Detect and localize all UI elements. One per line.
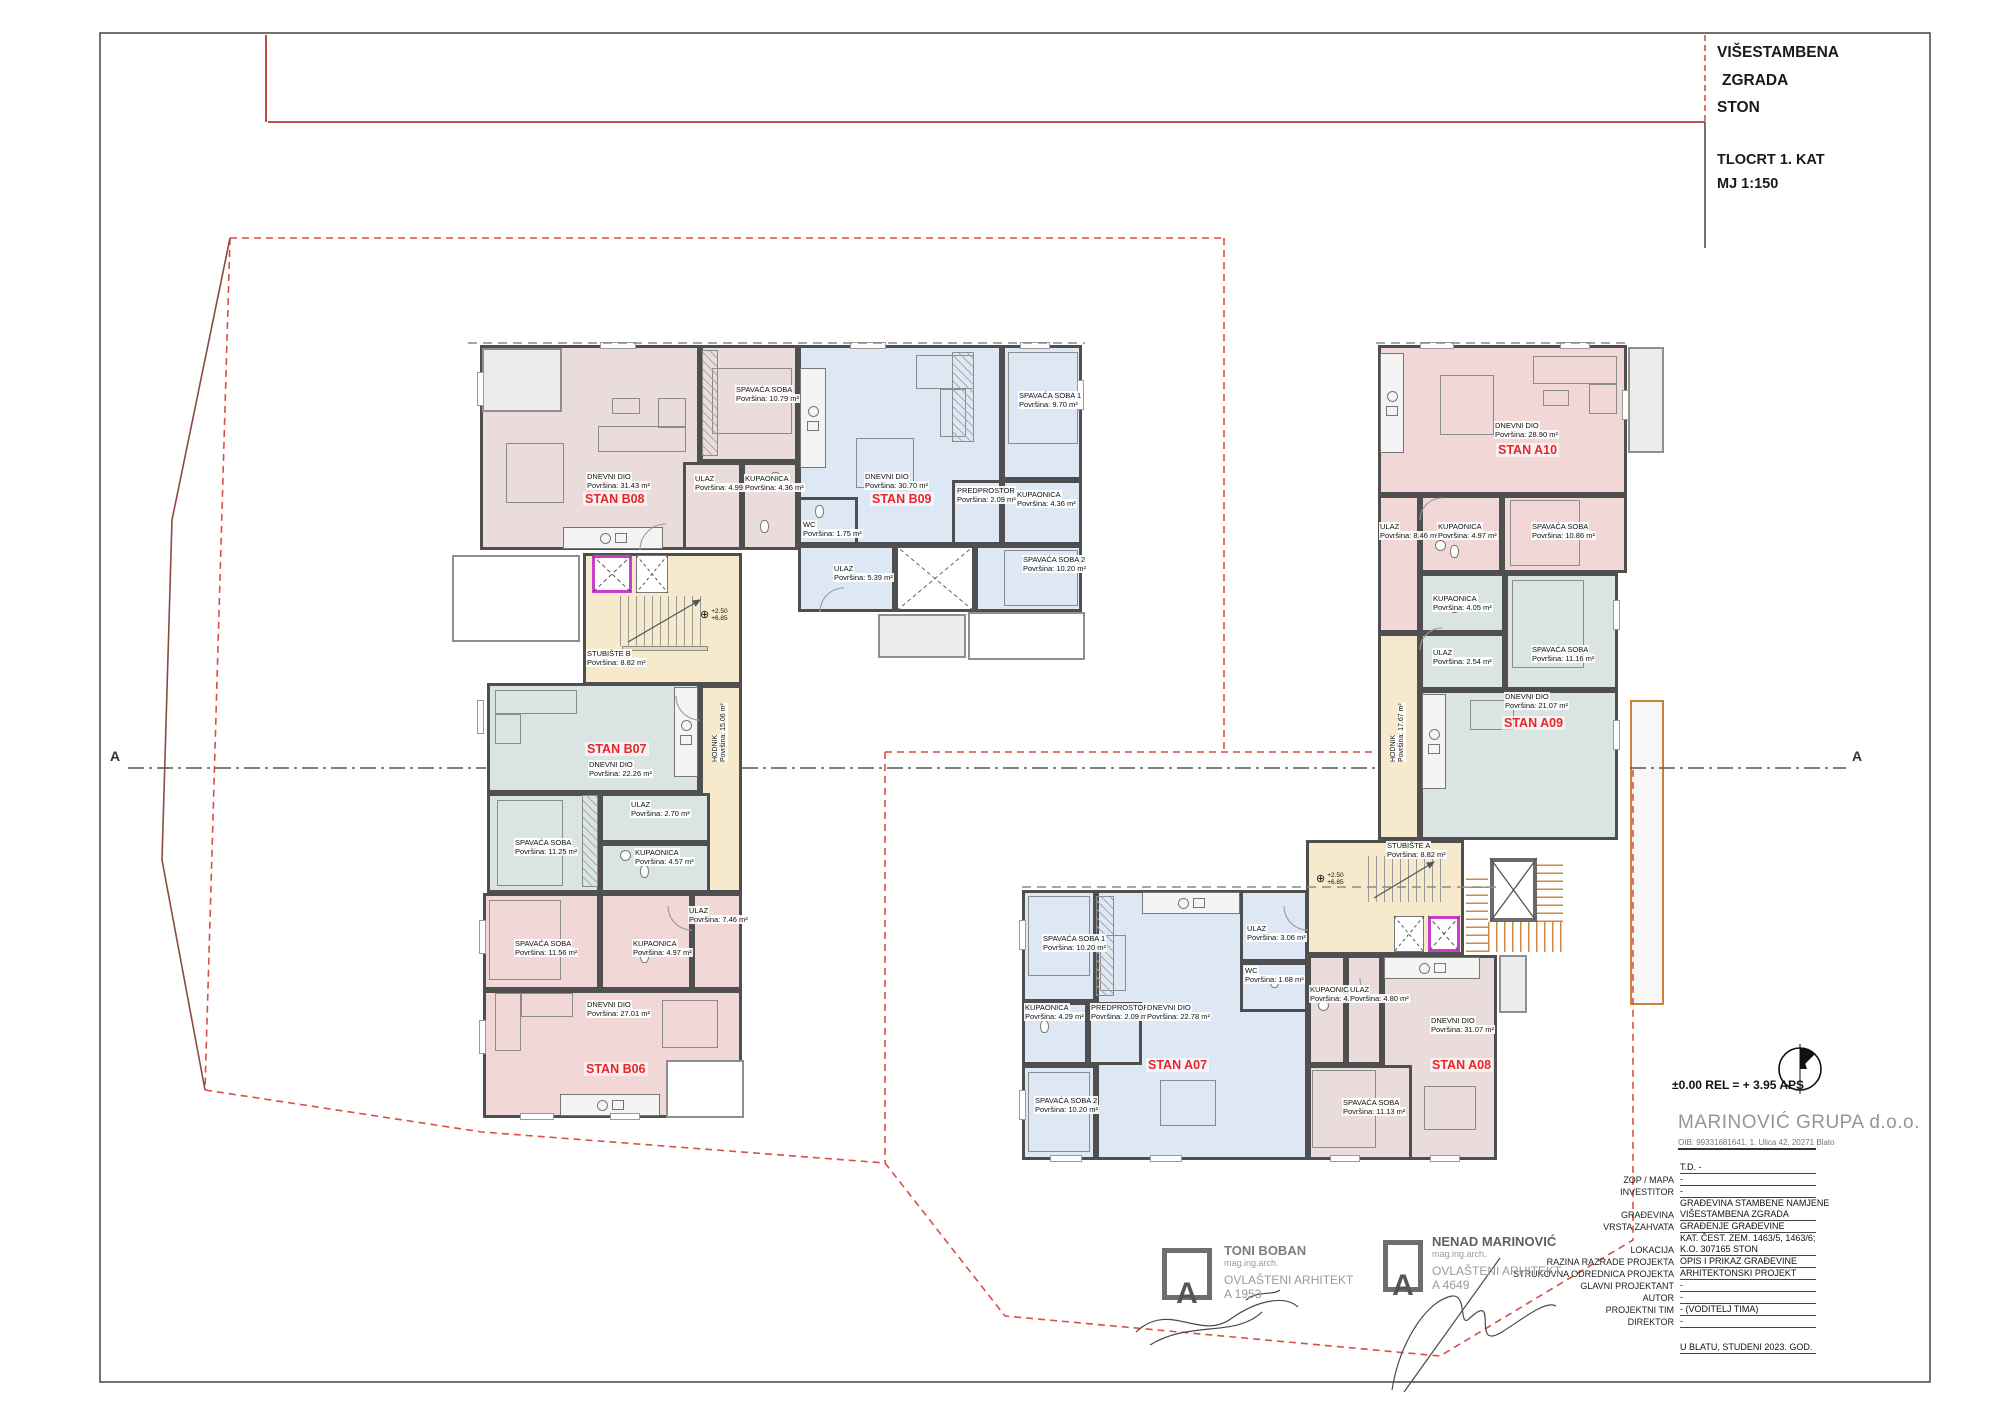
sink-icon (681, 720, 692, 731)
project-title-line1: VIŠESTAMBENA (1717, 44, 1839, 62)
architect-degree: mag.ing.arch. (1224, 1258, 1353, 1268)
window (1613, 720, 1620, 750)
room-label: SPAVAĆA SOBAPovršina: 11.16 m² (1531, 645, 1595, 663)
room-label: KUPAONICAPovršina: 4.57 m² (634, 848, 695, 866)
window (1019, 1090, 1026, 1120)
dining-table (506, 443, 564, 503)
terrace (666, 1060, 744, 1118)
apartment-label-b06: STAN B06 (584, 1062, 648, 1076)
room-a10-ulaz (1378, 495, 1420, 633)
apartment-label-a09: STAN A09 (1502, 716, 1565, 730)
terrace (1628, 347, 1664, 453)
terrace (968, 612, 1085, 660)
room-a09-living (1420, 690, 1618, 840)
room-label: KUPAONICAPovršina: 4.36 m² (744, 474, 805, 492)
window (479, 920, 486, 954)
terrace (482, 348, 562, 412)
architect-number: A 1953 (1224, 1287, 1353, 1301)
kitchen-counter (1384, 957, 1480, 979)
room-label: KUPAONICAPovršina: 4.97 m² (632, 939, 693, 957)
sofa (658, 398, 686, 428)
window (477, 372, 484, 406)
stove-icon (1193, 898, 1205, 908)
room-label: PREDPROSTORPovršina: 2.09 m² (1090, 1003, 1151, 1021)
window (610, 1113, 640, 1120)
kitchen-counter (1380, 353, 1404, 453)
skylight-box (1490, 858, 1537, 922)
window (1020, 342, 1050, 349)
level-marker: ⊕ +2.50+6.85 (700, 608, 728, 622)
coffee-table (612, 398, 640, 414)
apartment-label-b09: STAN B09 (870, 492, 934, 506)
elevator-b (592, 555, 632, 593)
apartment-label-a07: STAN A07 (1146, 1058, 1209, 1072)
drawing-scale: MJ 1:150 (1717, 176, 1778, 192)
info-row: GRAĐEVINAGRAĐEVINA STAMBENE NAMJENEVIŠES… (1346, 1198, 1816, 1221)
apartment-label-b08: STAN B08 (583, 492, 647, 506)
kitchen-counter (1422, 694, 1446, 789)
toilet-icon (815, 505, 824, 518)
room-label: SPAVAĆA SOBA 1Površina: 9.70 m² (1018, 391, 1082, 409)
apartment-label-a08: STAN A08 (1430, 1058, 1493, 1072)
window (1430, 1155, 1460, 1162)
room-label: DNEVNI DIOPovršina: 22.26 m² (588, 760, 653, 778)
dining-table (1160, 1080, 1216, 1126)
sofa (521, 993, 573, 1017)
window (850, 342, 886, 349)
kitchen-counter (1142, 892, 1240, 914)
coffee-table (1543, 390, 1569, 406)
info-row: DIREKTOR- (1346, 1316, 1816, 1328)
stove-icon (680, 735, 692, 745)
room-label: DNEVNI DIOPovršina: 31.07 m² (1430, 1016, 1495, 1034)
external-stair-run (1488, 922, 1563, 952)
room-label: ULAZPovršina: 7.46 m² (688, 906, 749, 924)
company-name: MARINOVIĆ GRUPA d.o.o. (1678, 1112, 1920, 1134)
signature-block-toni: TONI BOBAN mag.ing.arch. OVLAŠTENI ARHIT… (1224, 1243, 1353, 1301)
terrace (1499, 955, 1527, 1013)
window (1150, 1155, 1182, 1162)
room-label: ULAZPovršina: 2.54 m² (1432, 648, 1493, 666)
info-row: T.D. - (1346, 1162, 1816, 1174)
architect-title: OVLAŠTENI ARHITEKT (1432, 1264, 1561, 1278)
window (1019, 920, 1026, 950)
stair-treads-b (620, 596, 708, 646)
stove-icon (1434, 963, 1446, 973)
info-row: INVESTITOR- (1346, 1186, 1816, 1198)
room-label: SPAVAĆA SOBAPovršina: 10.86 m² (1531, 522, 1596, 540)
window (1560, 342, 1590, 349)
level-marker-icon: ⊕ (1316, 876, 1325, 883)
date-note: U BLATU, STUDENI 2023. GOD. (1680, 1342, 1816, 1354)
sofa (495, 993, 521, 1051)
room-label: ULAZPovršina: 3.06 m² (1246, 924, 1307, 942)
architect-name: TONI BOBAN (1224, 1243, 1353, 1258)
stove-icon (807, 421, 819, 431)
room-a08-kupaonica (1308, 955, 1346, 1065)
architect-number: A 4649 (1432, 1278, 1561, 1292)
room-label: KUPAONICAPovršina: 4.36 m² (1016, 490, 1077, 508)
room-label: DNEVNI DIOPovršina: 27.01 m² (586, 1000, 651, 1018)
project-title-line2: ZGRADA (1722, 72, 1788, 90)
window (520, 1113, 554, 1120)
info-row: VRSTA ZAHVATAGRAĐENJE GRAĐEVINE (1346, 1221, 1816, 1233)
room-label: DNEVNI DIOPovršina: 31.43 m² (586, 472, 651, 490)
architect-title: OVLAŠTENI ARHITEKT (1224, 1273, 1353, 1287)
sink-icon (620, 850, 631, 861)
section-marker-left: A (110, 748, 120, 764)
elevation-note: ±0.00 REL = + 3.95 APS (1672, 1078, 1804, 1092)
dining-table (1424, 1086, 1476, 1130)
toilet-icon (1040, 1020, 1049, 1033)
info-row: PROJEKTNI TIM- (VODITELJ TIMA) (1346, 1304, 1816, 1316)
elevator-a (1428, 916, 1460, 952)
corridor-b-label: HODNIKPovršina: 15.06 m² (712, 703, 728, 762)
room-label: ULAZPovršina: 5.39 m² (833, 564, 894, 582)
sofa (1533, 356, 1617, 384)
architect-degree: mag.ing.arch. (1432, 1249, 1561, 1259)
terrace (878, 614, 966, 658)
terrace (1630, 700, 1664, 1005)
external-stair-run (1537, 858, 1563, 922)
wardrobe (582, 795, 598, 887)
room-label: DNEVNI DIOPovršina: 28.90 m² (1494, 421, 1559, 439)
toilet-icon (1450, 545, 1459, 558)
room-label: SPAVAĆA SOBAPovršina: 11.56 m² (514, 939, 578, 957)
architect-name: NENAD MARINOVIĆ (1432, 1234, 1561, 1249)
window (1420, 342, 1454, 349)
wardrobe (952, 352, 974, 442)
wardrobe (702, 350, 718, 456)
room-a08-ulaz (1346, 955, 1382, 1065)
sink-icon (1387, 391, 1398, 402)
window (477, 700, 484, 734)
sofa (495, 690, 577, 714)
stair-treads-a (1368, 856, 1442, 902)
room-label: SPAVAĆA SOBAPovršina: 11.13 m² (1342, 1098, 1406, 1116)
apartment-label-a10: STAN A10 (1496, 443, 1559, 457)
stairwell-b-label: STUBIŠTE BPovršina: 8.82 m² (586, 649, 647, 667)
toilet-icon (760, 520, 769, 533)
floor-plan-sheet: DNEVNI DIOPovršina: 31.43 m² SPAVAĆA SOB… (0, 0, 2000, 1414)
stairwell-a-label: STUBIŠTE APovršina: 8.82 m² (1386, 841, 1447, 859)
sink-icon (1178, 898, 1189, 909)
sofa (495, 714, 521, 744)
window (1622, 390, 1629, 420)
external-stair-run (1466, 878, 1488, 952)
stove-icon (1386, 406, 1398, 416)
sofa (1589, 384, 1617, 414)
window (1613, 600, 1620, 630)
room-label: ULAZPovršina: 8.46 m² (1379, 522, 1440, 540)
architect-stamp-icon: A (1162, 1248, 1212, 1300)
room-label: DNEVNI DIOPovršina: 21.07 m² (1504, 692, 1569, 710)
kitchen-counter (800, 368, 826, 468)
room-label: SPAVAĆA SOBA 2Površina: 10.20 m² (1022, 555, 1087, 573)
info-row: ZOP / MAPA- (1346, 1174, 1816, 1186)
room-label: SPAVAĆA SOBAPovršina: 10.79 m² (735, 385, 800, 403)
window (479, 1020, 486, 1054)
level-marker: ⊕ +2.50+6.85 (1316, 872, 1344, 886)
room-label: PREDPROSTORPovršina: 2.09 m² (956, 486, 1017, 504)
room-label: WCPovršina: 1.68 m² (1244, 966, 1305, 984)
window (1050, 1155, 1082, 1162)
window (600, 342, 636, 349)
shaft-b (636, 555, 668, 593)
terrace (452, 555, 580, 642)
room-label: WCPovršina: 1.75 m² (802, 520, 863, 538)
room-label: KUPAONICAPovršina: 4.97 m² (1437, 522, 1498, 540)
room-label: SPAVAĆA SOBAPovršina: 11.25 m² (514, 838, 578, 856)
sink-icon (1429, 729, 1440, 740)
shaft-a (1394, 916, 1424, 952)
room-label: ULAZPovršina: 4.80 m² (1349, 985, 1410, 1003)
room-label: ULAZPovršina: 2.70 m² (630, 800, 691, 818)
stove-icon (615, 533, 627, 543)
kitchen-counter (563, 527, 663, 549)
shaft-b09 (895, 545, 975, 612)
corridor-a-label: HODNIKPovršina: 17.67 m² (1390, 703, 1406, 762)
dining-table (662, 1000, 718, 1048)
stove-icon (612, 1100, 624, 1110)
room-label: KUPAONICAPovršina: 4.05 m² (1432, 594, 1493, 612)
room-label: KUPAONICAPovršina: 4.29 m² (1024, 1003, 1085, 1021)
sink-icon (600, 533, 611, 544)
room-label: SPAVAĆA SOBA 1Površina: 10.20 m² (1042, 934, 1107, 952)
date-note-row: U BLATU, STUDENI 2023. GOD. (1346, 1342, 1816, 1354)
project-title-line3: STON (1717, 99, 1760, 117)
window (1330, 1155, 1360, 1162)
signature-block-nenad: NENAD MARINOVIĆ mag.ing.arch. OVLAŠTENI … (1432, 1234, 1561, 1292)
info-row: AUTOR- (1346, 1292, 1816, 1304)
toilet-icon (640, 865, 649, 878)
dining-table (1440, 375, 1494, 435)
company-details: OIB: 99331681641, 1. Ulica 42, 20271 Bla… (1678, 1138, 1816, 1150)
sink-icon (1419, 963, 1430, 974)
section-marker-right: A (1852, 748, 1862, 764)
sink-icon (1435, 540, 1446, 551)
room-label: SPAVAĆA SOBA 2Površina: 10.20 m² (1034, 1096, 1099, 1114)
sink-icon (597, 1100, 608, 1111)
sink-icon (808, 406, 819, 417)
level-marker-icon: ⊕ (700, 612, 709, 619)
room-label: DNEVNI DIOPovršina: 30.70 m² (864, 472, 929, 490)
drawing-title: TLOCRT 1. KAT (1717, 152, 1825, 168)
apartment-label-b07: STAN B07 (585, 742, 649, 756)
architect-stamp-icon: A (1383, 1240, 1423, 1292)
sofa (598, 426, 686, 452)
room-label: DNEVNI DIOPovršina: 22.78 m² (1146, 1003, 1211, 1021)
stove-icon (1428, 744, 1440, 754)
kitchen-counter (674, 687, 698, 777)
